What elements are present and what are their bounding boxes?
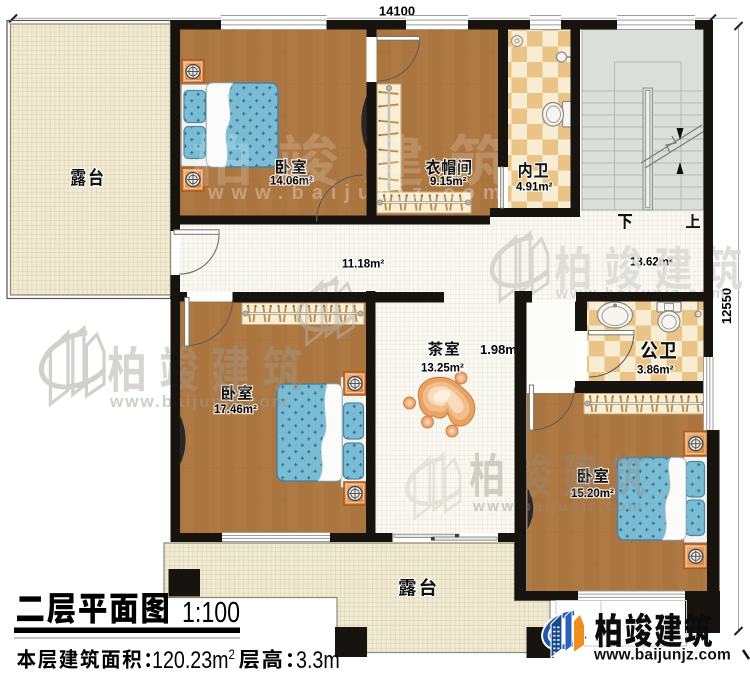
svg-text:www.baijunjz.com: www.baijunjz.com xyxy=(109,392,289,411)
svg-text:www.baijunjz.com: www.baijunjz.com xyxy=(472,498,644,515)
svg-text:3.86m²: 3.86m² xyxy=(637,365,674,377)
svg-text:120.23m2: 120.23m2 xyxy=(152,646,235,674)
svg-text:1:100: 1:100 xyxy=(182,595,240,628)
svg-text:www.baijunjz.com: www.baijunjz.com xyxy=(593,647,731,664)
svg-text:4.91m²: 4.91m² xyxy=(516,182,553,194)
svg-text:3.3m: 3.3m xyxy=(296,646,340,673)
svg-text:13.25m²: 13.25m² xyxy=(421,363,464,375)
svg-text:11.18m²: 11.18m² xyxy=(342,259,384,271)
svg-text:www.baijunjz.com: www.baijunjz.com xyxy=(207,182,509,204)
